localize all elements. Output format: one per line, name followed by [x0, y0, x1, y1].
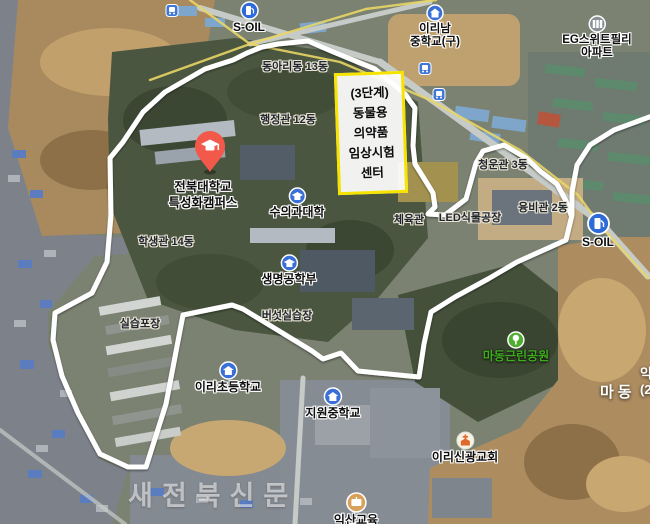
- map-canvas[interactable]: 전북대학교 특성화캠퍼스 (3단계) 동물용 의약품 임상시험 센터 S-OIL: [0, 0, 650, 524]
- bus-stop-icon[interactable]: [419, 62, 432, 75]
- education-office-icon: [345, 492, 366, 513]
- poi-vet-college[interactable]: 수의과대학: [269, 187, 324, 220]
- apartment-icon: [588, 15, 606, 33]
- poi-label: 익산교육: [334, 514, 378, 524]
- school-icon: [426, 4, 444, 22]
- school-icon: [323, 387, 342, 406]
- poi-soil-right[interactable]: S-OIL: [582, 212, 614, 250]
- poi-label: EG스위트필리 아파트: [562, 34, 632, 60]
- poi-jiwon-middle[interactable]: 지원중학교: [305, 387, 360, 421]
- poi-label: 지원중학교: [305, 407, 360, 421]
- highlight-line: 동물용: [353, 102, 388, 123]
- poi-label: 수의과대학: [269, 206, 324, 220]
- park-icon: [507, 331, 525, 349]
- poi-label: 마동근린공원: [483, 350, 549, 364]
- poi-label: 이리남 중학교(구): [410, 23, 460, 49]
- campus-pin[interactable]: [195, 131, 225, 172]
- bus-stop-icon[interactable]: [433, 88, 446, 101]
- campus-pin-label: 전북대학교 특성화캠퍼스: [168, 180, 237, 211]
- highlight-line: 의약품: [353, 122, 388, 143]
- gas-station-icon: [240, 1, 259, 20]
- area-label-edge-cut: (2: [640, 382, 650, 397]
- poi-iksan-edu[interactable]: 익산교육: [334, 492, 378, 524]
- newspaper-watermark: 새전북신문: [128, 474, 297, 513]
- poi-iri-elementary[interactable]: 이리초등학교: [195, 361, 261, 395]
- poi-label: 이리초등학교: [195, 381, 261, 395]
- poi-eg-apartment[interactable]: EG스위트필리 아파트: [562, 15, 632, 60]
- poi-label: S-OIL: [233, 21, 265, 35]
- bus-stop-icon[interactable]: [166, 4, 179, 17]
- poi-irinam-middle-school[interactable]: 이리남 중학교(구): [410, 4, 460, 49]
- poi-label: 이리신광교회: [432, 451, 498, 465]
- university-icon: [280, 254, 298, 272]
- poi-label: 생명공학부: [261, 273, 316, 287]
- gas-station-icon: [587, 212, 610, 235]
- poi-biotech[interactable]: 생명공학부: [261, 254, 316, 287]
- highlight-box-3rd-stage: (3단계) 동물용 의약품 임상시험 센터: [334, 71, 408, 195]
- poi-label: S-OIL: [582, 236, 614, 250]
- poi-shingwang-church[interactable]: 이리신광교회: [432, 431, 498, 465]
- university-icon: [288, 187, 306, 205]
- poi-madong-park[interactable]: 마동근린공원: [483, 331, 549, 364]
- church-icon: [456, 431, 475, 450]
- area-label-madong: 마동: [600, 381, 636, 402]
- main-pin-layer: [0, 0, 650, 524]
- highlight-line: 센터: [361, 163, 385, 184]
- highlight-line: (3단계): [350, 82, 389, 103]
- poi-soil-top[interactable]: S-OIL: [233, 1, 265, 35]
- school-icon: [219, 361, 238, 380]
- highlight-line: 임상시험: [348, 142, 395, 164]
- area-label-edge-cut: 익: [640, 363, 650, 382]
